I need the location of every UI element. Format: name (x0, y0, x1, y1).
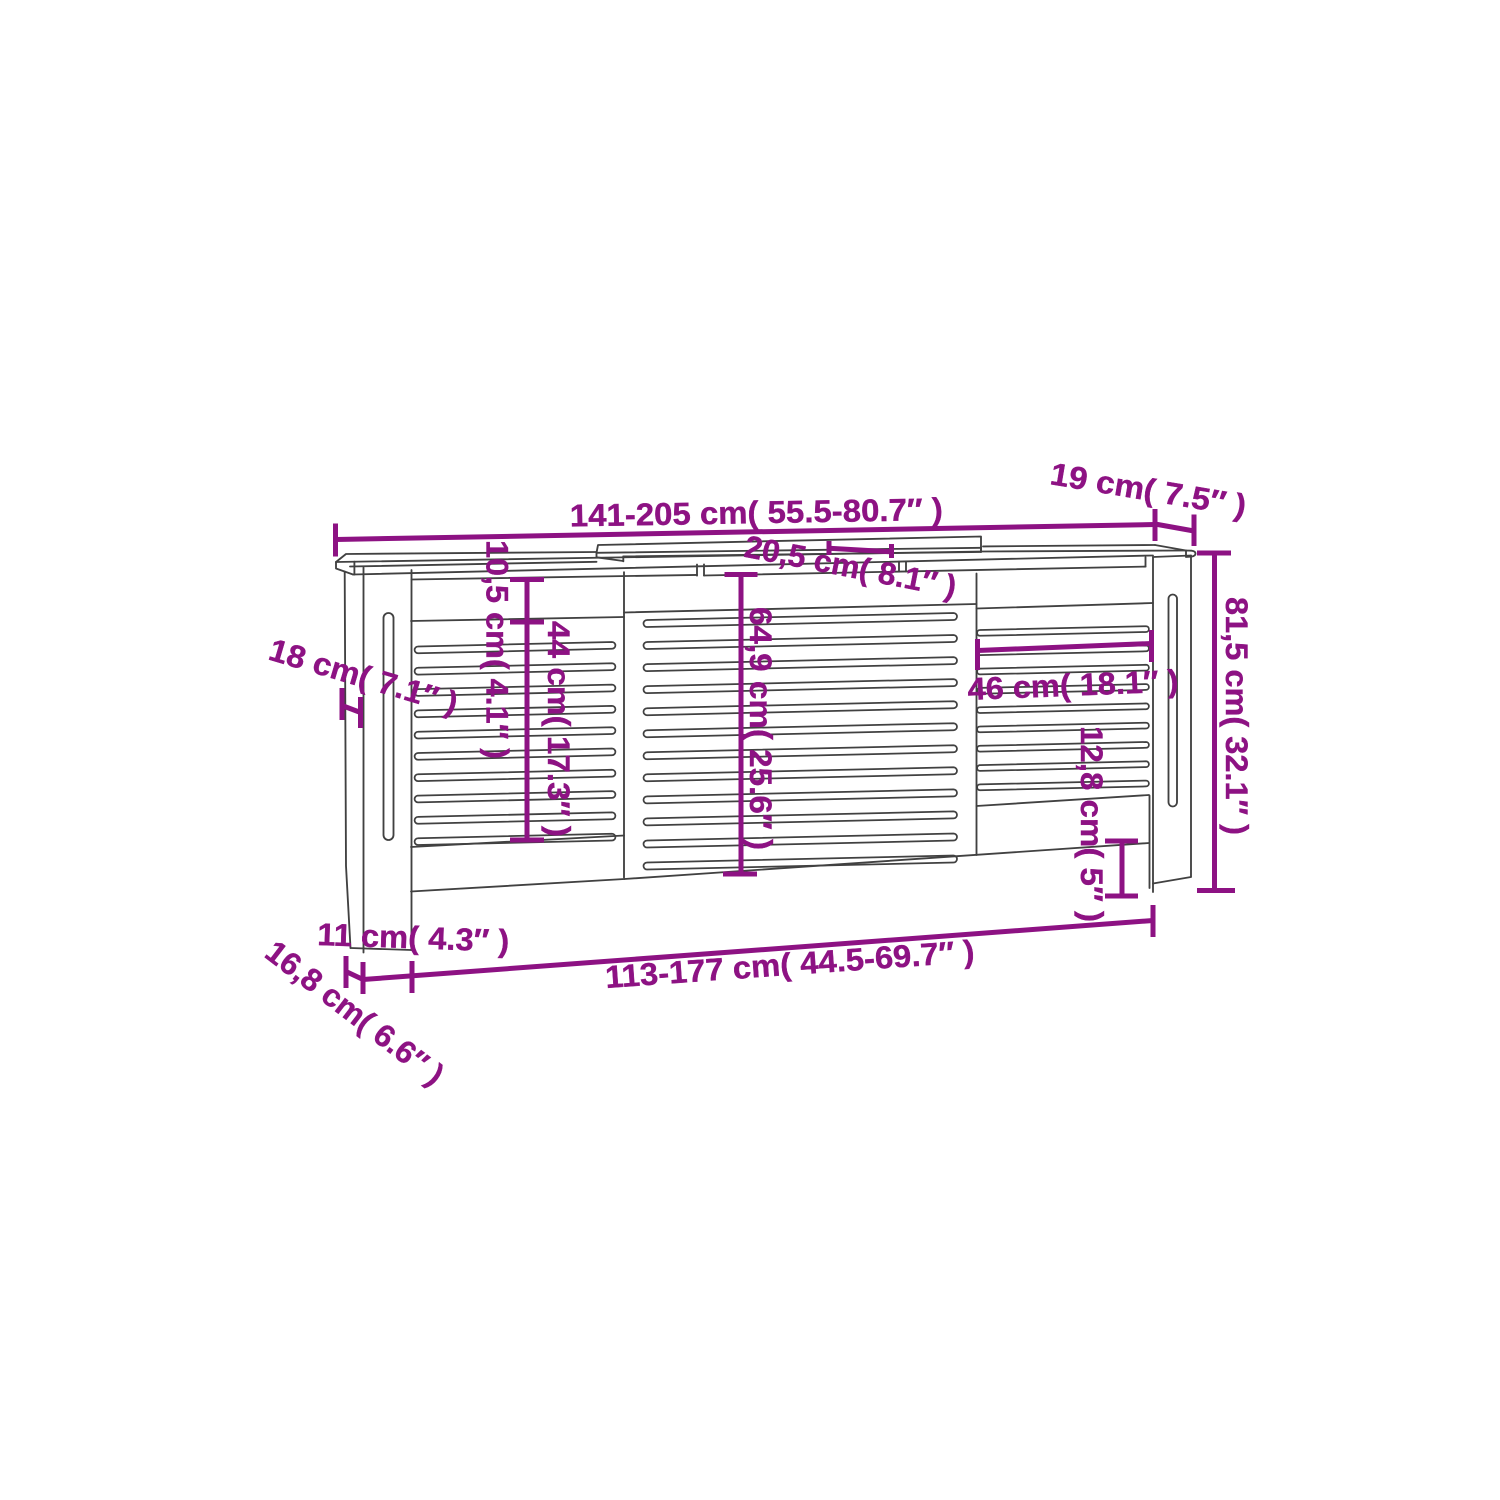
svg-text:44 cm( 17.3″ ): 44 cm( 17.3″ ) (541, 621, 577, 837)
svg-text:10,5 cm( 4.1″ ): 10,5 cm( 4.1″ ) (480, 540, 516, 759)
svg-text:12,8 cm( 5″ ): 12,8 cm( 5″ ) (1074, 726, 1110, 922)
svg-text:11 cm( 4.3″ ): 11 cm( 4.3″ ) (317, 916, 510, 959)
svg-text:81,5 cm( 32.1″ ): 81,5 cm( 32.1″ ) (1219, 597, 1255, 835)
svg-text:141-205 cm( 55.5-80.7″ ): 141-205 cm( 55.5-80.7″ ) (569, 491, 943, 534)
svg-text:64,9 cm( 25.6″ ): 64,9 cm( 25.6″ ) (743, 607, 779, 850)
